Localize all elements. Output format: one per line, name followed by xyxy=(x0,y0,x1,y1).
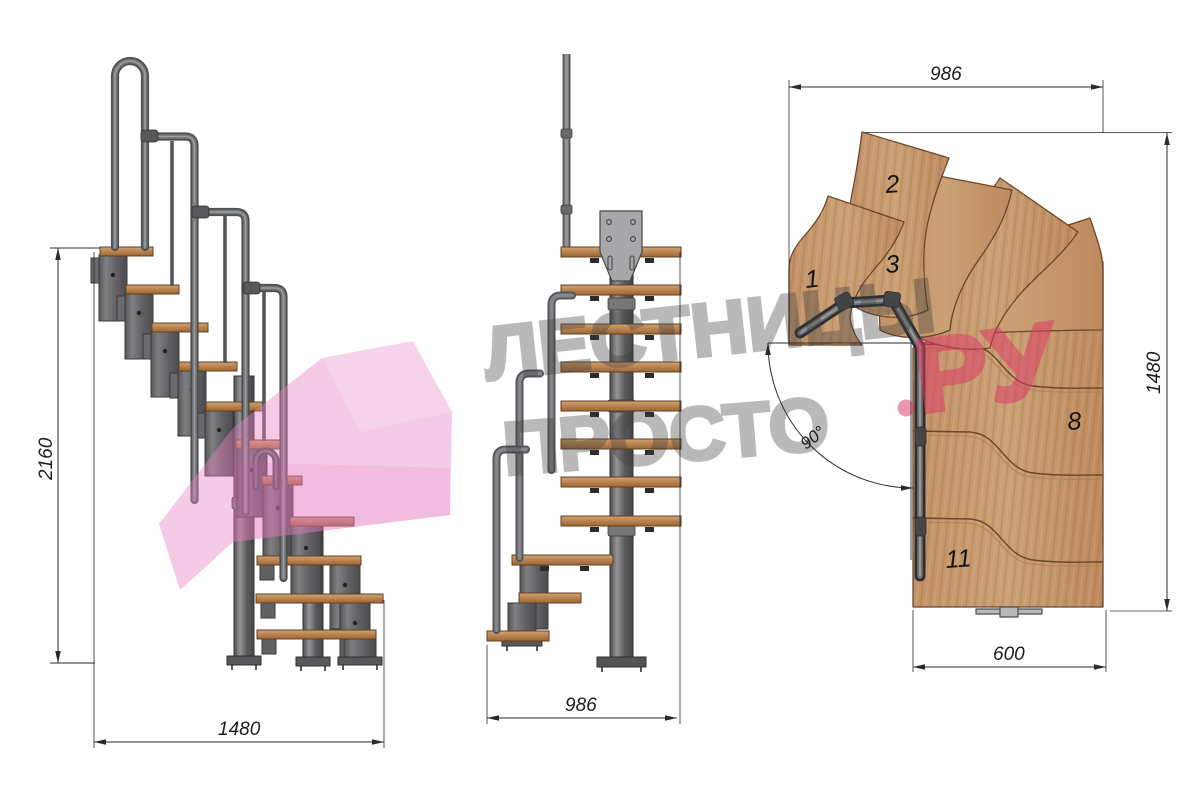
svg-text:1480: 1480 xyxy=(218,719,261,740)
svg-text:986: 986 xyxy=(565,695,597,716)
svg-text:600: 600 xyxy=(993,644,1025,665)
svg-text:986: 986 xyxy=(930,64,962,85)
svg-text:2: 2 xyxy=(883,170,900,199)
svg-text:2160: 2160 xyxy=(36,437,57,481)
svg-text:РУ: РУ xyxy=(907,301,1065,436)
svg-text:8: 8 xyxy=(1066,407,1082,436)
svg-text:1480: 1480 xyxy=(1144,351,1165,394)
svg-text:11: 11 xyxy=(944,544,972,574)
